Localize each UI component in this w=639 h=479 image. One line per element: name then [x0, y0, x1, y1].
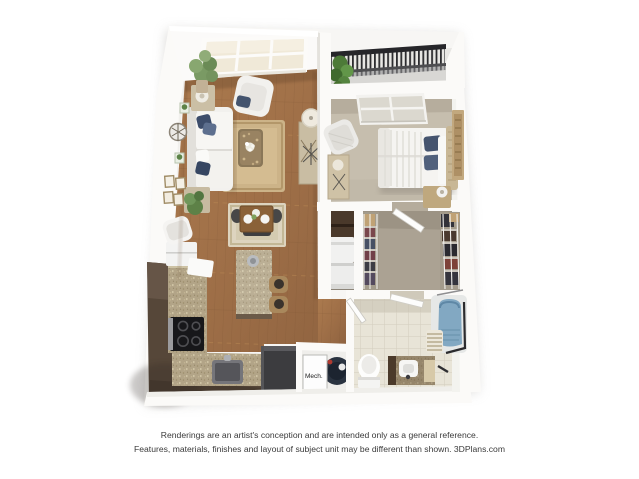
- svg-text:Mech.: Mech.: [305, 373, 323, 380]
